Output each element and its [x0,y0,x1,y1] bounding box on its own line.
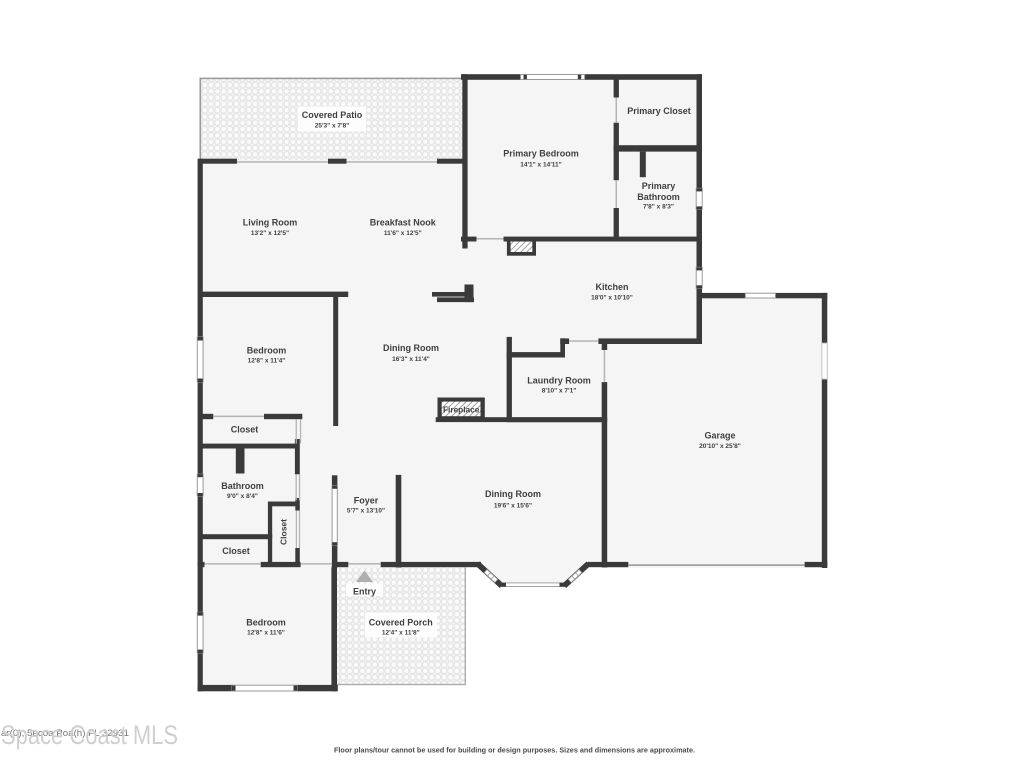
svg-text:Living Room: Living Room [243,218,298,228]
svg-text:Bathroom: Bathroom [221,481,264,491]
svg-text:12'4" x 11'8": 12'4" x 11'8" [382,630,420,637]
svg-text:Floor plans/tour cannot be use: Floor plans/tour cannot be used for buil… [334,746,695,755]
svg-text:Fireplace: Fireplace [443,404,480,414]
svg-text:Dining Room: Dining Room [485,489,541,499]
svg-text:Bedroom: Bedroom [246,618,286,628]
svg-text:9'0" x 8'4": 9'0" x 8'4" [227,493,258,500]
svg-text:Bathroom: Bathroom [637,192,680,202]
svg-text:Bedroom: Bedroom [247,346,287,356]
svg-text:14'1" x 14'11": 14'1" x 14'11" [520,162,561,169]
svg-text:Closet: Closet [222,546,250,556]
svg-text:Space Coast MLS: Space Coast MLS [1,720,178,750]
svg-text:Laundry Room: Laundry Room [527,375,591,385]
svg-text:Kitchen: Kitchen [595,282,628,292]
svg-text:Covered Patio: Covered Patio [302,110,363,120]
svg-text:20'10" x 25'8": 20'10" x 25'8" [699,443,741,450]
svg-text:13'2" x 12'5": 13'2" x 12'5" [251,230,289,237]
svg-text:Garage: Garage [704,430,735,440]
svg-text:5'7" x 13'10": 5'7" x 13'10" [347,508,385,515]
svg-text:19'6" x 15'6": 19'6" x 15'6" [494,503,532,510]
svg-text:Closet: Closet [279,519,289,545]
svg-text:Foyer: Foyer [354,496,379,506]
svg-text:12'8" x 11'6": 12'8" x 11'6" [247,630,285,637]
svg-text:8'10" x 7'1": 8'10" x 7'1" [542,387,577,394]
svg-text:Entry: Entry [353,587,376,597]
svg-text:18'0" x 10'10": 18'0" x 10'10" [591,295,633,302]
svg-text:25'3" x 7'8": 25'3" x 7'8" [315,123,350,130]
svg-text:Covered Porch: Covered Porch [369,618,433,628]
svg-text:Closet: Closet [231,425,259,435]
svg-text:Dining Room: Dining Room [383,343,439,353]
svg-text:Breakfast Nook: Breakfast Nook [370,218,437,228]
svg-text:Primary: Primary [642,181,676,191]
svg-text:Primary Closet: Primary Closet [627,106,691,116]
svg-text:16'3" x 11'4": 16'3" x 11'4" [392,356,430,363]
svg-text:Primary Bedroom: Primary Bedroom [503,149,579,159]
svg-text:12'8" x 11'4": 12'8" x 11'4" [248,358,286,365]
svg-text:7'8" x 8'3": 7'8" x 8'3" [643,204,674,211]
svg-text:11'6" x 12'5": 11'6" x 12'5" [384,230,422,237]
